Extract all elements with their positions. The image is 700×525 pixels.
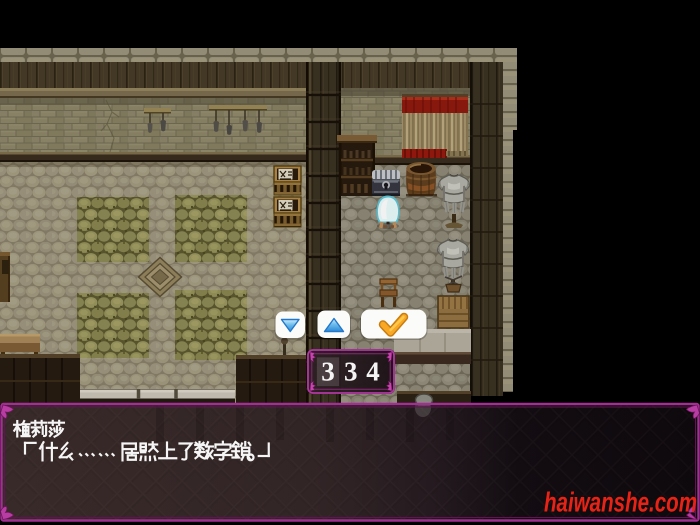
- svg-text:3: 3: [344, 357, 358, 387]
- svg-text:haiwanshe.com: haiwanshe.com: [544, 487, 697, 518]
- svg-text:3: 3: [321, 357, 335, 387]
- svg-text:4: 4: [366, 357, 380, 387]
